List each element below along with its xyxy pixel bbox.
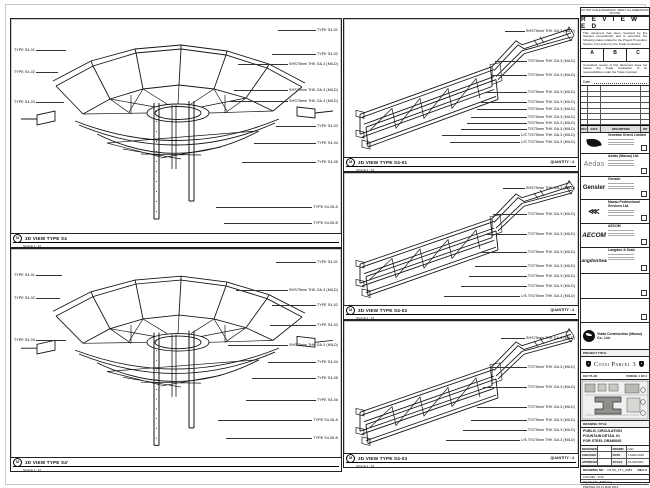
consultant-box: LangdonSeahLangdon & Seah bbox=[581, 248, 649, 274]
consultant-logo: Gensler bbox=[581, 177, 607, 199]
callout-label: TYPE S4-03 bbox=[270, 324, 338, 328]
leader-line bbox=[226, 438, 312, 439]
leader-line bbox=[230, 101, 288, 102]
leader-line bbox=[36, 340, 66, 341]
view-title: 3D VIEW TYPE S4-02 bbox=[358, 308, 407, 313]
status-option-b: B bbox=[604, 49, 627, 61]
callout-label: TYPE S4-03 bbox=[276, 125, 338, 129]
detail-bubble-icon: 02 bbox=[13, 458, 22, 467]
quantity-label: QUANTITY : 4 bbox=[551, 456, 577, 460]
callout-label: SHS75mm THK GA.3 (MILD) bbox=[234, 89, 338, 93]
stamp-checkbox bbox=[641, 290, 647, 296]
consultant-logo: AECOM bbox=[581, 224, 607, 247]
leader-line bbox=[278, 30, 316, 31]
detail-bubble-icon: 04 bbox=[346, 306, 355, 315]
consultant-box bbox=[581, 299, 649, 323]
drawing-number-label: DRAWING NO : bbox=[583, 468, 605, 472]
callout-label: TYPE S4-02 bbox=[272, 304, 338, 308]
scale-value: AS SHOWN bbox=[627, 459, 649, 466]
stamp-checkbox bbox=[641, 265, 647, 271]
stamp-checkbox bbox=[641, 239, 647, 245]
sheet-note: DO NOT SCALE DRAWINGS. VERIFY ALL DIMENS… bbox=[581, 8, 649, 16]
leader-line bbox=[270, 325, 316, 326]
leader-line bbox=[276, 126, 316, 127]
callout-label: T/S75mm THK GA.3 (MILD) bbox=[483, 386, 575, 390]
view-panel-s4-prime: 02 3D VIEW TYPE S4' SCALE 1 : 10 TYPE S4… bbox=[10, 248, 342, 472]
consultant-name: Aedas (Macau) Ltd. bbox=[608, 155, 647, 159]
detail-bubble-icon: 01 bbox=[13, 234, 22, 243]
leader-line bbox=[501, 338, 525, 339]
leader-line bbox=[272, 305, 316, 306]
consultant-name: Macau Professional Services Ltd. bbox=[608, 201, 647, 208]
approved-value: - bbox=[598, 459, 612, 466]
leader-line bbox=[491, 367, 527, 368]
keyplan-map bbox=[581, 380, 649, 421]
stamp-checkbox bbox=[641, 191, 647, 197]
keyplan-drawing bbox=[581, 380, 649, 420]
checked-label: CHECKED bbox=[581, 452, 598, 459]
keyplan-label: KEY PLAN bbox=[583, 374, 597, 378]
consultant-logo: Aedas bbox=[581, 154, 607, 176]
callout-label: TYPE S4-01 bbox=[14, 49, 66, 53]
callout-label: TYPE S4-02 bbox=[14, 297, 60, 301]
drawing-title-label: DRAWING TITLE bbox=[581, 421, 649, 428]
consultant-box bbox=[581, 274, 649, 299]
drawn-value: CAD bbox=[627, 446, 649, 453]
drawn-label: DRAWN bbox=[612, 446, 627, 453]
callout-label: T/S75mm THK GA.3 (MILD) bbox=[477, 406, 575, 410]
callout-label: L/S T/S75mm THK GA.3 (MILD) bbox=[444, 295, 575, 299]
leader-line bbox=[475, 266, 527, 267]
callout-label: T/S75mm THK GA.3 (MILD) bbox=[495, 60, 575, 64]
leader-line bbox=[444, 296, 520, 297]
consultant-logo bbox=[581, 133, 607, 153]
date-label: DATE bbox=[612, 452, 627, 459]
contractor-logo-icon bbox=[583, 330, 595, 342]
leader-line bbox=[495, 61, 527, 62]
callout-label: T/S75mm THK GA.3 (MILD) bbox=[491, 366, 575, 370]
leader-line bbox=[242, 162, 316, 163]
printed-on-row: PRINTED ON 14 MAR 2016 bbox=[581, 485, 649, 488]
quantity-label: QUANTITY : 4 bbox=[551, 308, 577, 312]
leader-line bbox=[485, 92, 527, 93]
leader-line bbox=[463, 430, 527, 431]
checked-value: - bbox=[598, 452, 612, 459]
drawing-number-row: DRAWING NO : P3-SK_FTL_8484 REV A bbox=[581, 467, 649, 475]
detail-bubble-icon: 05 bbox=[346, 454, 355, 463]
consultant-logo: LangdonSeah bbox=[581, 248, 607, 273]
revision-table-header: REVDATEDESCRIPTIONINT bbox=[581, 125, 649, 131]
leader-line bbox=[238, 64, 288, 65]
consultant-logo: ⋘ bbox=[581, 200, 607, 223]
status-option-c: C bbox=[627, 49, 649, 61]
view-title: 3D VIEW TYPE S4-03 bbox=[358, 456, 407, 461]
callout-label: L/S T/S75mm THK GA.3 (MILD) bbox=[446, 439, 575, 443]
view-label: 02 3D VIEW TYPE S4' SCALE 1 : 10 bbox=[11, 457, 341, 471]
leader-line bbox=[218, 420, 312, 421]
consultant-box: AedasAedas (Macau) Ltd. bbox=[581, 154, 649, 177]
project-emblem-icon bbox=[639, 361, 644, 367]
view-title: 3D VIEW TYPE S4' bbox=[25, 460, 68, 465]
consultant-logo bbox=[581, 274, 607, 298]
project-name: Cotai Parcel 3 bbox=[594, 361, 636, 368]
callout-label: T/S75mm THK GA.3 (MILD) bbox=[461, 128, 575, 132]
review-date-row: Date : bbox=[581, 77, 649, 86]
leader-line bbox=[36, 298, 60, 299]
consultant-address-lines bbox=[608, 183, 647, 188]
callout-label: T/S75mm THK GA.3 (MILD) bbox=[477, 108, 575, 112]
callout-label: TYPE S4-03 bbox=[14, 339, 66, 343]
leader-line bbox=[446, 440, 520, 441]
callout-label: TYPE S4-05 bbox=[242, 161, 338, 165]
view-panel-s4: 01 3D VIEW TYPE S4 SCALE 1 : 10 TYPE S4-… bbox=[10, 18, 342, 248]
consultant-stack: Venetian Orient LimitedAedasAedas (Macau… bbox=[581, 133, 649, 323]
view-panel-s4-02: 04 3D VIEW TYPE S4-02 QUANTITY : 4 SCALE… bbox=[343, 172, 579, 320]
callout-label: TYPE S4-02 bbox=[272, 53, 338, 57]
callout-label: SHS75mm THK GA.3 (MILD) bbox=[501, 337, 575, 341]
consultant-name: AECOM bbox=[608, 225, 647, 229]
date-value: 7-MAR-2016 bbox=[627, 452, 649, 459]
callout-label: T/S75mm THK GA.3 (MILD) bbox=[493, 213, 575, 217]
callout-label: TYPE S4-01 bbox=[278, 29, 338, 33]
consultant-box: ⋘Macau Professional Services Ltd. bbox=[581, 200, 649, 224]
stamp-checkbox bbox=[641, 314, 647, 320]
callout-label: SHS75mm THK GA.3 (MILD) bbox=[503, 187, 575, 191]
callout-label: TYPE S4-05 bbox=[252, 377, 338, 381]
view-label: 03 3D VIEW TYPE S4-01 QUANTITY : 4 SCALE… bbox=[344, 157, 578, 171]
callout-label: T/S75mm THK GA.3 (MILD) bbox=[471, 116, 575, 120]
callout-label: T/S75mm THK GA.3 (MILD) bbox=[491, 74, 575, 78]
callout-label: T/S75mm THK GA.3 (MILD) bbox=[487, 233, 575, 237]
view-title: 3D VIEW TYPE S4-01 bbox=[358, 160, 407, 165]
callout-label: T/S75mm THK GA.3 (MILD) bbox=[481, 251, 575, 255]
leader-line bbox=[471, 117, 527, 118]
consultant-address-lines bbox=[608, 254, 647, 259]
callout-label: SHS75mm THK GA.3 (MILD) bbox=[236, 289, 338, 293]
review-disclaimer-text: Consultant review of this document does … bbox=[581, 62, 649, 77]
leader-line bbox=[491, 75, 527, 76]
revision-value: REV A bbox=[638, 468, 647, 472]
view-scale: SCALE 1 : 10 bbox=[356, 464, 578, 468]
callout-label: L/S T/S75mm THK GA.3 (MILD) bbox=[450, 141, 575, 145]
project-title-label: PROJECT TITLE bbox=[581, 350, 649, 357]
consultant-name: Gensler bbox=[608, 178, 647, 182]
callout-label: SHS75mm THK GA.3 (MILD) bbox=[505, 30, 575, 34]
leader-line bbox=[36, 275, 62, 276]
stamp-checkbox bbox=[641, 145, 647, 151]
callout-label: T/S75mm THK GA.3 (MILD) bbox=[481, 101, 575, 105]
leader-line bbox=[487, 234, 527, 235]
leader-line bbox=[467, 123, 527, 124]
callout-label: T/S75mm THK GA.3 (MILD) bbox=[463, 429, 575, 433]
project-title: Cotai Parcel 3 bbox=[581, 357, 649, 373]
review-status-options: A B C bbox=[581, 49, 649, 62]
consultant-box: GenslerGensler bbox=[581, 177, 649, 200]
view-label: 01 3D VIEW TYPE S4 SCALE 1 : 10 bbox=[11, 233, 341, 247]
drawing-title: PUBLIC CIRCULATION FOUNTAIN DETAIL 01 FO… bbox=[581, 428, 649, 446]
leader-line bbox=[236, 290, 288, 291]
leader-line bbox=[461, 286, 527, 287]
leader-line bbox=[477, 109, 527, 110]
callout-label: TYPE S4-06.A bbox=[218, 419, 338, 423]
stamp-checkbox bbox=[641, 168, 647, 174]
callout-label: SHS75mm THK GA.3 (MILD) bbox=[230, 100, 338, 104]
leader-line bbox=[246, 400, 316, 401]
leader-line bbox=[276, 262, 316, 263]
keyplan-parcel-label: PARCEL 1 OF 3 bbox=[626, 374, 647, 378]
callout-label: SHS75mm THK GA.3 (MILD) bbox=[238, 63, 338, 67]
leader-line bbox=[461, 129, 527, 130]
leader-line bbox=[36, 72, 58, 73]
leader-line bbox=[481, 252, 527, 253]
view-label: 05 3D VIEW TYPE S4-03 QUANTITY : 4 SCALE… bbox=[344, 453, 578, 467]
callout-label: T/S75mm THK GA.3 (MILD) bbox=[467, 122, 575, 126]
view-panel-s4-01: 03 3D VIEW TYPE S4-01 QUANTITY : 4 SCALE… bbox=[343, 18, 579, 172]
callout-label: T/S75mm THK GA.3 (MILD) bbox=[485, 91, 575, 95]
scale-label: SCALE bbox=[612, 459, 627, 466]
leader-line bbox=[442, 135, 520, 136]
drawing-title-line3: FOR STEEL DRAWING bbox=[583, 439, 647, 444]
quantity-label: QUANTITY : 4 bbox=[551, 160, 577, 164]
drawing-sheet: 01 3D VIEW TYPE S4 SCALE 1 : 10 TYPE S4-… bbox=[0, 0, 650, 488]
callout-label: TYPE S4-05.A bbox=[216, 206, 338, 210]
radial-structure-drawing bbox=[11, 249, 341, 458]
revision-table: REVDATEDESCRIPTIONINT bbox=[581, 86, 649, 133]
leader-line bbox=[471, 420, 527, 421]
view-label: 04 3D VIEW TYPE S4-02 QUANTITY : 4 SCALE… bbox=[344, 305, 578, 319]
status-option-a: A bbox=[581, 49, 604, 61]
consultant-box: Venetian Orient Limited bbox=[581, 133, 649, 154]
leader-line bbox=[483, 387, 527, 388]
leader-line bbox=[450, 142, 520, 143]
callout-label: TYPE S4-04 bbox=[254, 142, 338, 146]
leader-line bbox=[272, 54, 316, 55]
leader-line bbox=[469, 276, 527, 277]
consultant-address-lines bbox=[608, 160, 647, 165]
leader-line bbox=[36, 50, 66, 51]
leader-line bbox=[481, 102, 527, 103]
signoff-table: DESIGNED DRAWN CAD CHECKED - DATE 7-MAR-… bbox=[581, 446, 649, 467]
leader-line bbox=[503, 188, 525, 189]
callout-label: TYPE S4-04 bbox=[268, 361, 338, 365]
leader-line bbox=[224, 223, 312, 224]
leader-line bbox=[477, 407, 527, 408]
consultant-box: AECOMAECOM bbox=[581, 224, 649, 248]
contractor-box: Yidda Construction (Macau) Co., Ltd. bbox=[581, 323, 649, 350]
designed-label: DESIGNED bbox=[581, 446, 598, 453]
leader-line bbox=[493, 214, 527, 215]
callout-label: SHS75mm THK GA.3 (MILD) bbox=[228, 344, 338, 348]
view-scale: SCALE 1 : 10 bbox=[23, 468, 341, 472]
leader-line bbox=[505, 31, 525, 32]
contractor-name: Yidda Construction (Macau) Co., Ltd. bbox=[597, 332, 647, 340]
leader-line bbox=[252, 378, 316, 379]
callout-label: T/S75mm THK GA.3 (MILD) bbox=[471, 419, 575, 423]
callout-label: L/S T/S75mm THK GA.3 (MILD) bbox=[442, 134, 575, 138]
callout-label: T/S75mm THK GA.3 (MILD) bbox=[475, 265, 575, 269]
date-label: Date : bbox=[583, 80, 592, 84]
consultant-name: Langdon & Seah bbox=[608, 249, 647, 253]
leader-line bbox=[254, 143, 316, 144]
leader-line bbox=[216, 207, 312, 208]
stamp-checkbox bbox=[641, 215, 647, 221]
view-title: 3D VIEW TYPE S4 bbox=[25, 236, 67, 241]
callout-label: TYPE S4-01 bbox=[14, 274, 62, 278]
leader-line bbox=[268, 362, 316, 363]
project-emblem-icon bbox=[586, 361, 591, 367]
leader-line bbox=[36, 102, 64, 103]
designed-value bbox=[598, 446, 612, 453]
drawing-number-value: P3-SK_FTL_8484 bbox=[607, 468, 632, 472]
consultant-name: Venetian Orient Limited bbox=[608, 134, 647, 138]
callout-label: TYPE S4-06 bbox=[246, 399, 338, 403]
callout-label: TYPE S4-01 bbox=[276, 261, 338, 265]
view-panel-s4-03: 05 3D VIEW TYPE S4-03 QUANTITY : 4 SCALE… bbox=[343, 320, 579, 468]
consultant-logo bbox=[581, 299, 607, 322]
date-fill-line bbox=[594, 79, 647, 84]
title-block: DO NOT SCALE DRAWINGS. VERIFY ALL DIMENS… bbox=[580, 7, 650, 483]
review-status-text: This document has been reviewed by the r… bbox=[581, 30, 649, 49]
leader-line bbox=[228, 345, 288, 346]
callout-label: TYPE S4-05.B bbox=[224, 222, 338, 226]
callout-label: T/S75mm THK GA.3 (MILD) bbox=[461, 285, 575, 289]
detail-bubble-icon: 03 bbox=[346, 158, 355, 167]
callout-label: TYPE S4-06.B bbox=[226, 437, 338, 441]
leader-line bbox=[234, 90, 288, 91]
callout-label: T/S75mm THK GA.3 (MILD) bbox=[469, 275, 575, 279]
consultant-address-lines bbox=[608, 230, 647, 235]
callout-label: TYPE S4-03 bbox=[14, 101, 64, 105]
approved-label: APPROVED bbox=[581, 459, 598, 466]
callout-label: TYPE S4-02 bbox=[14, 71, 58, 75]
reviewed-stamp: R E V I E W E D bbox=[581, 16, 649, 30]
keyplan-header: KEY PLAN PARCEL 1 OF 3 bbox=[581, 373, 649, 380]
